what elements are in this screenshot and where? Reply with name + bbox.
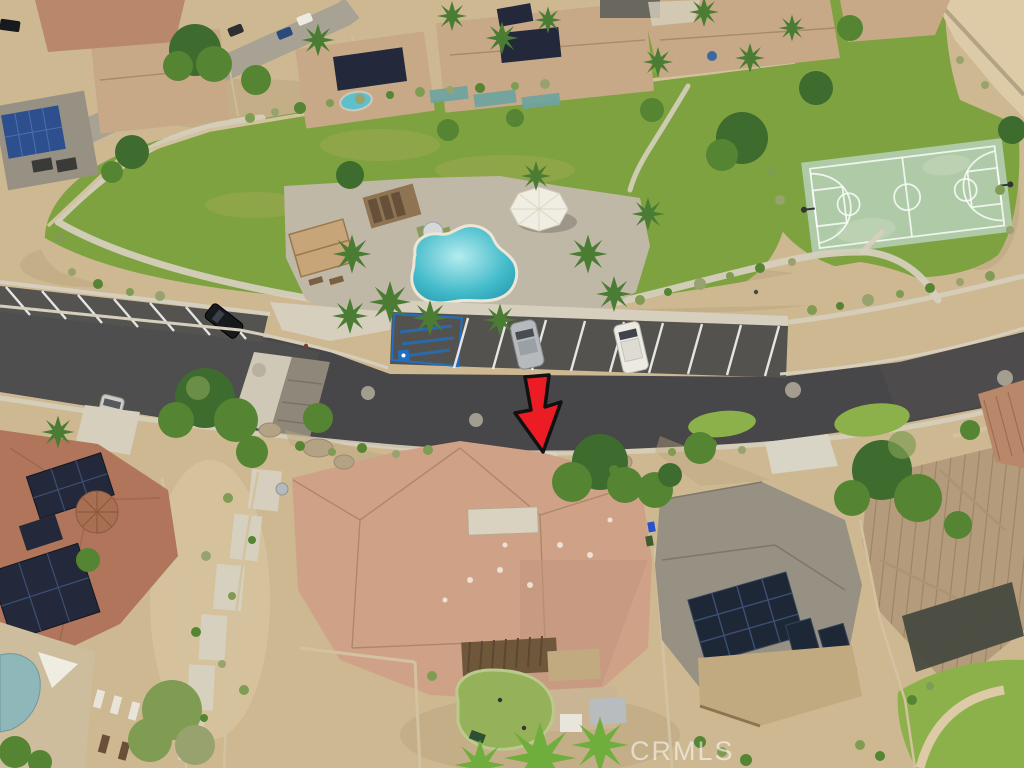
pedestrian bbox=[754, 290, 758, 294]
turret-roof bbox=[76, 491, 118, 533]
pedestrian bbox=[304, 344, 308, 348]
aerial-photo: CRMLS bbox=[0, 0, 1024, 768]
putting-hole bbox=[522, 726, 526, 730]
putting-hole bbox=[498, 698, 502, 702]
garage-door bbox=[468, 507, 539, 535]
ac-unit bbox=[276, 483, 288, 495]
casita bbox=[547, 686, 627, 732]
watermark: CRMLS bbox=[630, 736, 735, 767]
house-roof-solar bbox=[0, 91, 99, 191]
scene-canvas bbox=[0, 0, 1024, 768]
patio-umbrella bbox=[707, 51, 717, 61]
driveway bbox=[648, 0, 700, 26]
